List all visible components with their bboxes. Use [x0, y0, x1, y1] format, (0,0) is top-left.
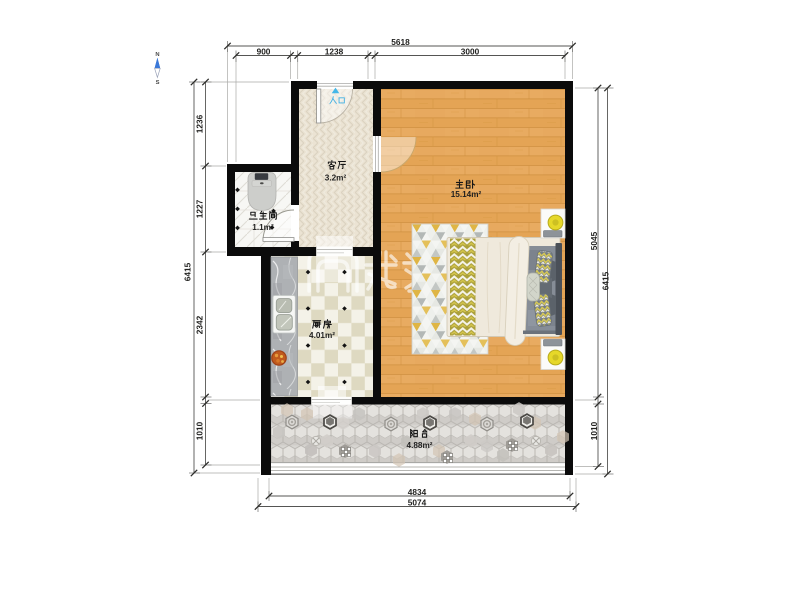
- svg-text:6415: 6415: [183, 262, 193, 281]
- svg-text:4834: 4834: [408, 487, 427, 497]
- svg-text:1227: 1227: [195, 199, 205, 218]
- svg-text:S: S: [156, 80, 160, 86]
- svg-text:N: N: [155, 52, 159, 58]
- svg-text:1238: 1238: [325, 46, 344, 56]
- svg-text:1010: 1010: [195, 421, 205, 440]
- svg-text:15.14m²: 15.14m²: [451, 190, 482, 199]
- svg-text:4.88m²: 4.88m²: [407, 441, 433, 450]
- svg-text:1236: 1236: [195, 114, 205, 133]
- svg-text:1010: 1010: [589, 421, 599, 440]
- svg-text:3.2m²: 3.2m²: [325, 173, 347, 182]
- svg-text:900: 900: [257, 46, 271, 56]
- svg-text:3000: 3000: [461, 46, 480, 56]
- svg-text:5618: 5618: [391, 37, 410, 47]
- svg-text:5045: 5045: [589, 231, 599, 250]
- svg-text:1.1m²: 1.1m²: [252, 223, 274, 232]
- svg-text:6415: 6415: [601, 271, 611, 290]
- svg-text:4.01m²: 4.01m²: [309, 331, 335, 340]
- svg-text:5074: 5074: [408, 497, 427, 507]
- svg-text:2342: 2342: [195, 315, 205, 334]
